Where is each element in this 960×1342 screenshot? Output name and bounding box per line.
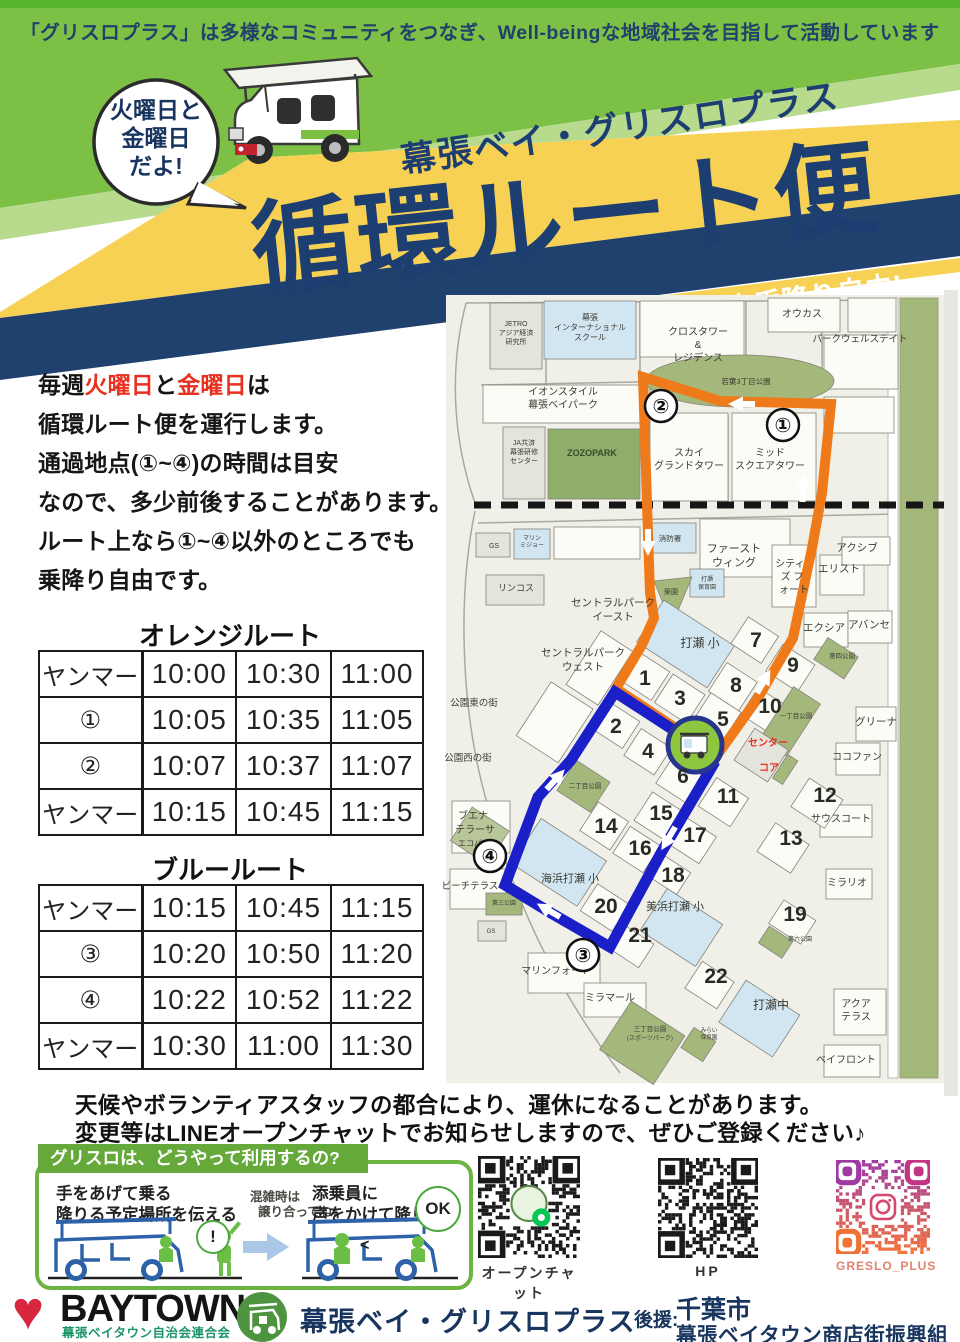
route-map: JETROアジア経済研究所幕張インターナショナルスクールオウカスクロスタワー&レ… xyxy=(428,293,960,1087)
map-label: 築園 xyxy=(664,587,678,596)
table-row: ①10:0510:3511:05 xyxy=(39,697,423,743)
qr-openchat: オープンチャット xyxy=(478,1156,580,1303)
intro-line: 乗降り自由です。 xyxy=(38,561,478,600)
table-row: ④10:2210:5211:22 xyxy=(39,977,423,1023)
map-label: コア xyxy=(759,762,779,774)
map-label: ミジョー xyxy=(520,543,544,549)
map-block-number: 11 xyxy=(717,785,740,808)
map-block-number: 17 xyxy=(683,824,706,847)
map-label: ズ フ xyxy=(781,570,804,583)
page-edge xyxy=(944,290,958,1096)
map-label: 打瀬中 xyxy=(753,997,789,1012)
orange-route-table: ヤンマー10:0010:3011:00①10:0510:3511:05②10:0… xyxy=(38,650,424,836)
map-label: 幕張研修 xyxy=(510,447,538,456)
map-block-number: 2 xyxy=(610,715,622,738)
svg-text:③: ③ xyxy=(575,945,592,967)
map-block-number: 15 xyxy=(649,802,673,825)
map-label: みらい xyxy=(701,1027,718,1034)
intro-line: ルート上なら①~④以外のところでも xyxy=(38,522,478,561)
footer-brand: 幕張ベイ・グリスロプラス xyxy=(300,1300,635,1339)
svg-text:①: ① xyxy=(775,415,792,437)
map-label: スクエアタワー xyxy=(735,460,805,472)
map-block-number: 6 xyxy=(677,765,689,788)
map-label: 第四公園 xyxy=(829,651,855,660)
map-label: ベイフロント xyxy=(816,1054,876,1066)
map-label: ブエナ xyxy=(458,809,488,822)
map-label: ココファン xyxy=(832,752,882,763)
map-label: 幕張 xyxy=(582,312,598,322)
map-label: 公園東の街 xyxy=(450,697,498,709)
map-label: アクシブ xyxy=(836,541,878,554)
map-label: イオンスタイル xyxy=(528,386,598,398)
map-label: 第三公園 xyxy=(492,899,516,907)
map-label: 第六公園 xyxy=(788,935,812,943)
map-label: アクア xyxy=(841,998,871,1010)
exclaim-bubble: ! xyxy=(196,1220,230,1254)
ok-bubble: OK xyxy=(415,1186,461,1232)
map-block-number: 21 xyxy=(628,924,652,947)
map-label: 打瀬 小 xyxy=(680,636,719,650)
map-label: エリスト xyxy=(818,563,860,575)
map-block-number: 12 xyxy=(813,784,836,807)
route-stop-marker: ① xyxy=(767,409,799,441)
map-label: 打瀬 xyxy=(701,575,713,583)
table-row: ②10:0710:3711:07 xyxy=(39,743,423,789)
map-block-number: 20 xyxy=(594,895,617,918)
map-label: セントラルパーク xyxy=(571,597,655,609)
map-block-number: 9 xyxy=(787,654,799,677)
blue-route-table: ヤンマー10:1510:4511:15③10:2010:5011:20④10:2… xyxy=(38,884,424,1070)
map-label: JA共済 xyxy=(513,438,535,447)
map-label: マリン xyxy=(523,535,541,542)
map-label: グリーナ xyxy=(855,715,897,728)
map-label: シティ xyxy=(775,559,804,570)
orange-table-title: オレンジルート xyxy=(38,616,422,653)
map-label: 美浜打瀬 小 xyxy=(646,899,704,913)
map-label: 幕張ベイパーク xyxy=(528,398,598,411)
map-label: ミラリオ xyxy=(827,877,867,889)
map-block-number: 10 xyxy=(758,695,781,718)
svg-text:<: < xyxy=(360,1237,369,1254)
map-label: アジア経済 xyxy=(499,328,534,337)
map-label: ZOZOPARK xyxy=(567,448,617,458)
map-label: 海浜打瀬 小 xyxy=(541,871,599,885)
qr-hp-label: HP xyxy=(658,1263,758,1279)
qr-hp: HP xyxy=(658,1158,758,1279)
map-label: アバンセ xyxy=(848,619,890,631)
route-stop-marker: ④ xyxy=(474,840,506,872)
heart-icon: ♥ xyxy=(12,1284,44,1338)
map-label: 研究所 xyxy=(506,337,527,346)
map-label: ミッド xyxy=(755,448,785,459)
route-stop-marker: ③ xyxy=(567,939,599,971)
poster: 「グリスロプラス」は多様なコミュニティをつなぎ、Well-beingな地域社会を… xyxy=(0,0,960,1342)
usage-header: グリスロは、どうやって利用するの? xyxy=(38,1144,368,1173)
intro-paragraph: 毎週火曜日と金曜日は循環ルート便を運行します。通過地点(①~④)の時間は目安なの… xyxy=(38,366,478,600)
map-label: 保育園 xyxy=(701,1033,718,1041)
qr-openchat-label: オープンチャット xyxy=(478,1263,580,1303)
flow-arrow-icon xyxy=(243,1232,291,1262)
map-label: GS xyxy=(489,543,499,550)
map-block-number: 4 xyxy=(642,740,654,763)
map-label: テラーサ xyxy=(455,824,495,836)
map-label: レジデンス xyxy=(673,351,723,364)
intro-line: 循環ルート便を運行します。 xyxy=(38,405,478,444)
map-label: JETRO xyxy=(505,321,529,328)
map-block-number: 14 xyxy=(594,815,618,838)
map-label: ォート xyxy=(779,585,809,596)
map-label: パークウェルステイト xyxy=(812,334,907,345)
map-label: (スポーツパーク) xyxy=(627,1034,673,1042)
map-label: & xyxy=(695,340,702,351)
map-block-number: 22 xyxy=(704,965,727,988)
map-label: サウスコート xyxy=(811,813,871,825)
map-label: インターナショナル xyxy=(554,323,626,332)
qr-openchat-icon xyxy=(478,1156,580,1258)
map-block-number: 7 xyxy=(750,629,762,652)
map-label: 消防署 xyxy=(659,533,682,543)
map-label: ウィング xyxy=(712,555,756,569)
top-banner-text: 「グリスロプラス」は多様なコミュニティをつなぎ、Well-beingな地域社会を… xyxy=(0,16,960,45)
map-label: セントラルパーク xyxy=(541,647,625,659)
map-label: クロスタワー xyxy=(668,326,728,338)
map-block-number: 13 xyxy=(779,827,802,850)
map-label: 若葉3丁目公園 xyxy=(721,376,770,386)
map-label: GS xyxy=(487,929,496,935)
map-label: グランドタワー xyxy=(654,459,724,472)
map-block-number: 19 xyxy=(783,903,806,926)
footer-baytown-sub: 幕張ベイタウン自治会連合会 xyxy=(62,1322,231,1341)
map-label: エクシア xyxy=(803,622,845,634)
map-label: スカイ xyxy=(674,447,704,459)
map-label: オウカス xyxy=(782,308,822,320)
map-block-number: 16 xyxy=(628,837,651,860)
map-block-number: 5 xyxy=(717,708,729,731)
table-row: ヤンマー10:1510:4511:15 xyxy=(39,789,423,835)
map-block-number: 1 xyxy=(639,667,651,690)
intro-line: なので、多少前後することがあります。 xyxy=(38,483,478,522)
qr-instagram: GRESLO_PLUS xyxy=(836,1160,930,1273)
qr-hp-icon xyxy=(658,1158,758,1258)
map-label: センター xyxy=(510,456,538,465)
table-row: ヤンマー10:3011:0011:30 xyxy=(39,1023,423,1069)
bubble-text: 火曜日と金曜日だよ! xyxy=(96,96,216,180)
footer-cart-badge-icon xyxy=(237,1292,287,1342)
blue-table-title: ブルールート xyxy=(38,850,422,887)
map-block-number: 8 xyxy=(730,674,742,697)
map-label: イースト xyxy=(592,611,633,623)
svg-text:④: ④ xyxy=(482,846,499,868)
footer-support-label: 後援: xyxy=(634,1305,678,1332)
map-label: ウェスト xyxy=(562,661,604,673)
intro-line: 通過地点(①~④)の時間は目安 xyxy=(38,444,478,483)
map-label: ファースト xyxy=(707,543,761,555)
map-label: 公園西の街 xyxy=(444,752,492,764)
svg-text:②: ② xyxy=(653,396,670,418)
map-label: 二丁目公園 xyxy=(569,782,602,790)
map-label: スクール xyxy=(574,333,606,342)
map-label: 一丁目公園 xyxy=(780,712,813,720)
map-block-number: 3 xyxy=(674,687,686,710)
route-stop-marker: ② xyxy=(645,390,677,422)
map-block-number: 18 xyxy=(661,864,685,887)
intro-line: 毎週火曜日と金曜日は xyxy=(38,366,478,405)
qr-instagram-icon xyxy=(836,1160,930,1254)
map-label: リンコス xyxy=(498,583,534,593)
cart-illustration-icon xyxy=(205,48,405,188)
table-row: ③10:2010:5011:20 xyxy=(39,931,423,977)
map-label: 保育園 xyxy=(698,583,716,591)
table-row: ヤンマー10:1510:4511:15 xyxy=(39,885,423,931)
map-label: テラス xyxy=(841,1011,871,1023)
map-label: センター xyxy=(748,737,788,749)
map-label: 三丁目公園 xyxy=(634,1025,667,1033)
table-row: ヤンマー10:0010:3011:00 xyxy=(39,651,423,697)
map-label: ビーチテラス xyxy=(442,881,499,892)
footer-support-org: 幕張ベイタウン商店街振興組合 xyxy=(676,1318,960,1342)
base-circle-icon xyxy=(668,718,722,772)
map-label: ミラマール xyxy=(585,992,635,1004)
qr-instagram-label: GRESLO_PLUS xyxy=(836,1259,930,1273)
